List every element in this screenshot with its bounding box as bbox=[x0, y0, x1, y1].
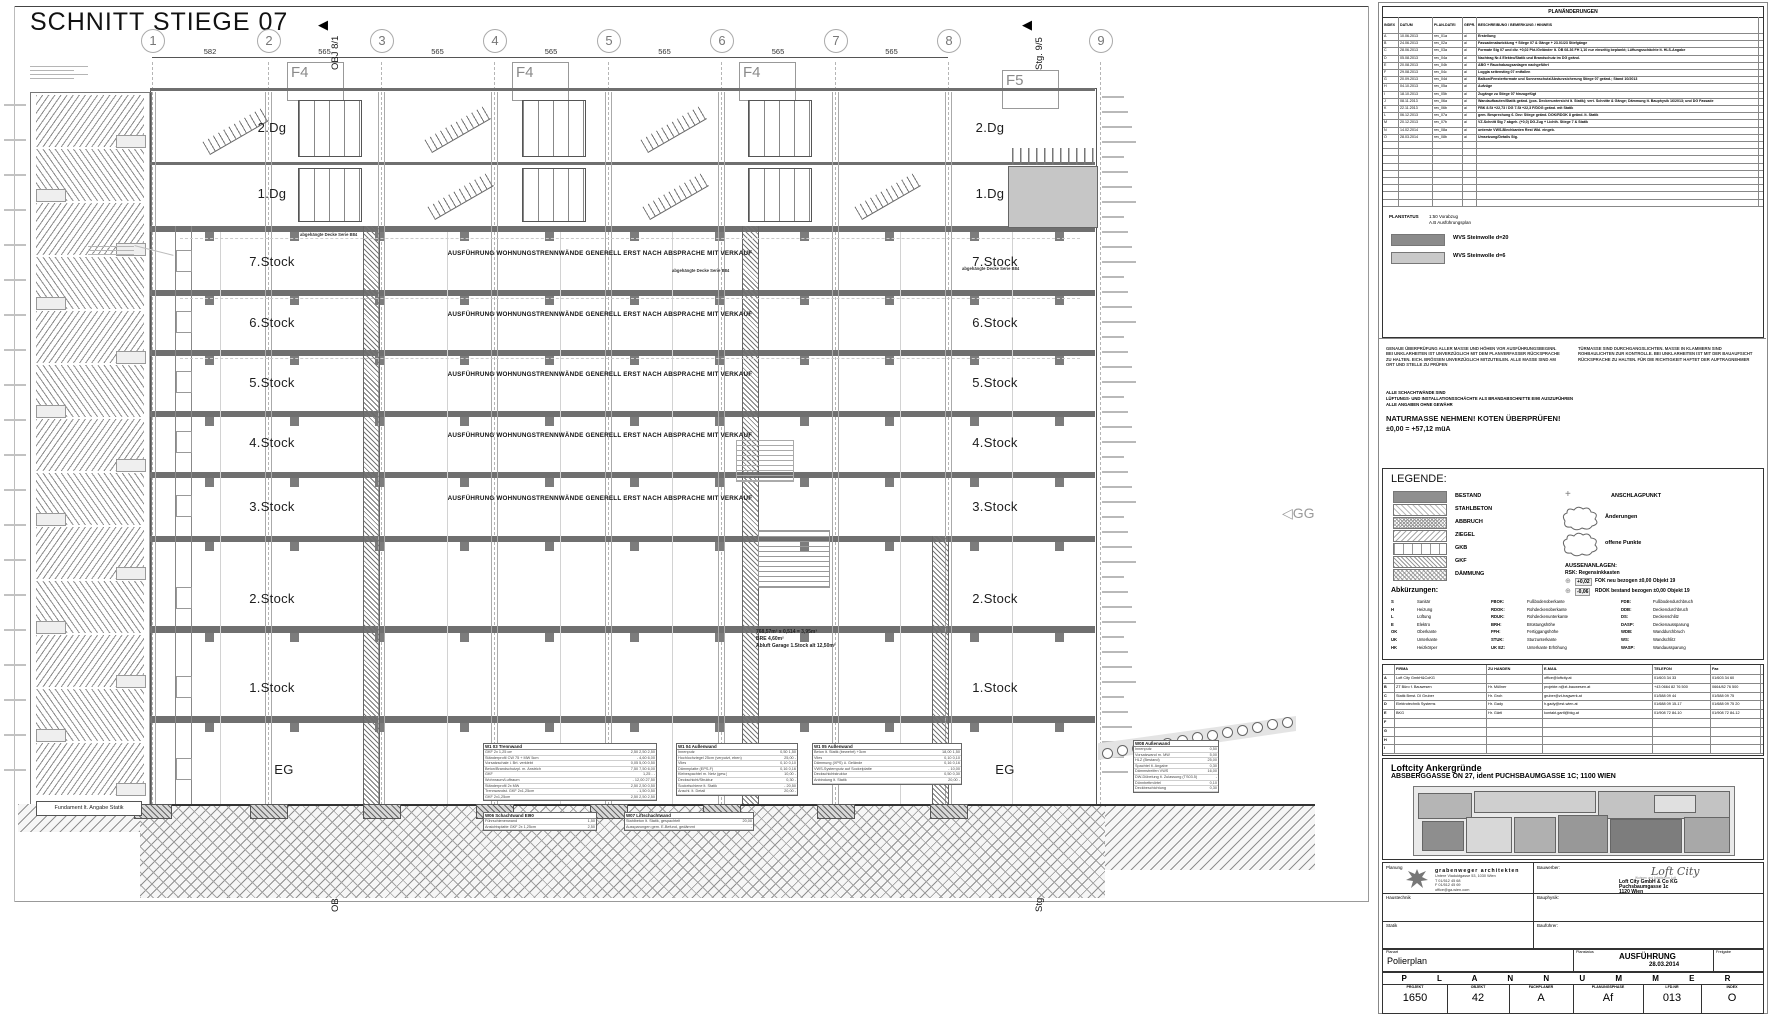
abk-key: S bbox=[1391, 599, 1394, 604]
legend-title: LEGENDE: bbox=[1391, 473, 1447, 485]
spec-row-label: Vlies bbox=[678, 761, 686, 766]
contacts-cell bbox=[1653, 744, 1711, 753]
right-annotation-mark bbox=[1102, 711, 1128, 713]
spec-row-values: 0,10 bbox=[1210, 781, 1217, 786]
abk-meaning: Unterkante Erhöhung bbox=[1527, 645, 1567, 650]
beam-stub bbox=[1055, 542, 1064, 551]
bauwerber-label: Bauwerber: bbox=[1537, 865, 1560, 870]
site-plan-building bbox=[1514, 817, 1556, 853]
stair-tower-landing bbox=[116, 567, 146, 580]
revision-cell: 14.02.2014 bbox=[1399, 127, 1433, 134]
stair-tower-landing bbox=[36, 297, 66, 310]
spec-table: W1 05 AußenwandBeton lt. Statik (bewehrt… bbox=[812, 743, 962, 785]
beam-stub bbox=[545, 232, 554, 241]
revision-cell: K bbox=[1383, 105, 1399, 112]
contacts-cell: 0664/82 76 500 bbox=[1711, 683, 1761, 692]
revision-cell: ai bbox=[1463, 83, 1477, 90]
bauwerber-line: 1120 Wien bbox=[1619, 889, 1643, 895]
spec-row-values: 25,00 bbox=[1207, 758, 1217, 763]
spec-row-label: Deckschichtstruktur bbox=[814, 772, 847, 777]
revision-cloud-icon bbox=[1559, 505, 1601, 531]
beam-stub bbox=[460, 542, 469, 551]
revision-cell: ai bbox=[1463, 47, 1477, 54]
beam-stub bbox=[460, 633, 469, 642]
revision-cell: rev_04d bbox=[1433, 76, 1463, 83]
right-annotation-mark bbox=[1102, 126, 1132, 128]
right-annotation-mark bbox=[1102, 531, 1128, 533]
spec-row-values: 20,00 - bbox=[948, 778, 960, 783]
revision-cell: ai bbox=[1463, 62, 1477, 69]
contacts-row: I bbox=[1383, 744, 1763, 754]
revision-cell: B bbox=[1383, 40, 1399, 47]
stair-tower-landing bbox=[36, 189, 66, 202]
contacts-cell bbox=[1653, 727, 1711, 736]
section-marker-arrow-icon: ◀ bbox=[318, 20, 328, 30]
spec-row-values: 1,50 bbox=[588, 819, 595, 824]
floor-label-left: 2.Dg bbox=[258, 120, 287, 135]
contacts-header-cell: TELEFON bbox=[1653, 665, 1711, 674]
right-annotation-mark bbox=[1102, 216, 1124, 218]
revision-header-cell: INDEX bbox=[1383, 17, 1399, 33]
spec-row-label: Ständerprofil CW 75 + MW 5cm bbox=[485, 756, 539, 761]
shaft-door bbox=[176, 587, 192, 609]
revision-cell: rev_06b bbox=[1433, 105, 1463, 112]
beam-stub bbox=[800, 723, 809, 732]
revision-cell: gem. Besprechung 6. Dez: Stiege geänd. D… bbox=[1477, 112, 1759, 119]
left-annotation-mark bbox=[4, 454, 26, 456]
abk-key: DS: bbox=[1621, 614, 1628, 619]
revision-cell bbox=[1399, 141, 1433, 148]
spec-row-values: - bbox=[1216, 775, 1217, 780]
floor-label-right: 6.Stock bbox=[972, 315, 1017, 330]
spec-row-values: 2,50 2,50 0,50 bbox=[631, 784, 655, 789]
revision-cell: ai bbox=[1463, 98, 1477, 105]
abk-key: DASP: bbox=[1621, 622, 1634, 627]
spec-row-label: Dämmplatte (EPS-F) bbox=[678, 767, 713, 772]
num-vline bbox=[1763, 984, 1764, 1013]
legend-swatch bbox=[1393, 569, 1447, 581]
right-annotation-mark bbox=[1102, 411, 1128, 413]
revision-cell bbox=[1399, 184, 1433, 191]
revision-cell bbox=[1463, 141, 1477, 148]
right-annotation-mark bbox=[1102, 561, 1136, 563]
column-line bbox=[491, 92, 492, 804]
plan-number-value: O bbox=[1701, 992, 1763, 1004]
spec-row-values: 20,00 bbox=[742, 819, 752, 824]
beam-stub bbox=[800, 417, 809, 426]
column-line bbox=[384, 92, 385, 804]
freigabe-label: Freigabe bbox=[1716, 950, 1731, 954]
abk-key: BRH: bbox=[1491, 622, 1501, 627]
grid-bubble-top: 1 bbox=[141, 29, 165, 53]
revision-cell: 20.09.2013 bbox=[1399, 76, 1433, 83]
contacts-cell bbox=[1487, 744, 1543, 753]
abk-meaning: Fußbodenoberkante bbox=[1527, 599, 1565, 604]
spec-row-values: 25,00 - bbox=[784, 756, 796, 761]
revision-cell bbox=[1383, 170, 1399, 177]
contacts-cell: Hr. Groh bbox=[1487, 692, 1543, 701]
ceiling-dashed-line bbox=[180, 298, 1080, 299]
grid-bubble-top: 7 bbox=[824, 29, 848, 53]
ground-hatch-right bbox=[1105, 806, 1315, 870]
gg-marker: ◁GG bbox=[1282, 505, 1315, 522]
revision-cell bbox=[1383, 148, 1399, 155]
contacts-cell: gruber@zt-tragwerk.at bbox=[1543, 692, 1653, 701]
contacts-cell bbox=[1711, 718, 1761, 727]
planstatus-line: A.B Ausführungsplan bbox=[1429, 220, 1471, 225]
beam-stub bbox=[1055, 633, 1064, 642]
contacts-cell bbox=[1487, 736, 1543, 745]
beam-stub bbox=[205, 723, 214, 732]
sheet-frame-top bbox=[14, 6, 1368, 7]
contacts-cell bbox=[1711, 744, 1761, 753]
legend-swatch bbox=[1393, 530, 1447, 542]
contacts-table: FIRMAZU HANDENE-MAILTELEFONFaxALoft City… bbox=[1382, 664, 1764, 756]
contacts-cell: kontakt.gartl@bkg.at bbox=[1543, 709, 1653, 718]
datum-note: ±0,00 = +57,12 müA bbox=[1386, 426, 1451, 433]
grid-bubble-top: 5 bbox=[597, 29, 621, 53]
left-annotation-mark bbox=[4, 349, 26, 351]
stair-flight bbox=[736, 440, 794, 482]
grid-line bbox=[1100, 62, 1101, 830]
revision-cell bbox=[1463, 148, 1477, 155]
ceiling-note: abgehängte Decke Serie B84 bbox=[962, 266, 1019, 271]
floor-label-left: EG bbox=[274, 762, 293, 777]
foundation-pad bbox=[363, 804, 401, 819]
beam-stub bbox=[800, 232, 809, 241]
spec-row-label: DW-Dübelung lt. Zulassung (TS03.5) bbox=[1135, 775, 1197, 780]
drawing-sheet: SCHNITT STIEGE 07 1122334455667788995825… bbox=[0, 0, 1772, 1017]
left-annotation-mark bbox=[4, 139, 26, 141]
revision-cell bbox=[1433, 141, 1463, 148]
spec-row-label: GKF bbox=[485, 772, 493, 777]
foundation-pad bbox=[250, 804, 288, 819]
dim-value-top: 565 bbox=[431, 47, 444, 56]
abk-key: RDUK: bbox=[1491, 614, 1505, 619]
abk-key: FDB: bbox=[1621, 599, 1631, 604]
right-annotation-mark bbox=[1102, 156, 1124, 158]
revision-cell: Fassadenabwicklung + Stiege 07 & Gänge +… bbox=[1477, 40, 1759, 47]
abk-meaning: Wanddurchbruch bbox=[1653, 629, 1685, 634]
revision-cell bbox=[1399, 199, 1433, 206]
revision-cell: ai bbox=[1463, 127, 1477, 134]
beam-stub bbox=[715, 633, 724, 642]
attic-window bbox=[522, 100, 586, 157]
project-address: ABSBERGGASSE ON 27, ident PUCHSBAUMGASSE… bbox=[1391, 773, 1616, 780]
left-annotation-mark bbox=[4, 664, 26, 666]
right-annotation-mark bbox=[1102, 456, 1124, 458]
note-text-mark bbox=[30, 78, 74, 79]
contacts-cell: Hr. Müllner bbox=[1487, 683, 1543, 692]
ceiling-dashed-line bbox=[180, 238, 1080, 239]
revision-cell bbox=[1463, 199, 1477, 206]
right-annotation-mark bbox=[1102, 651, 1128, 653]
site-plan-building bbox=[1654, 795, 1696, 813]
revision-cell: ABG + Rauchabzugsanlagen nachgeführt bbox=[1477, 62, 1759, 69]
floor-label-right: 1.Dg bbox=[976, 186, 1005, 201]
floor-slab bbox=[150, 716, 1095, 723]
revision-cell: J bbox=[1383, 98, 1399, 105]
beam-stub bbox=[545, 723, 554, 732]
titleblock-panel: PLANÄNDERUNGENINDEXDATUMPLAN-DATEIGEPR.B… bbox=[1378, 2, 1768, 1014]
column-line bbox=[951, 92, 952, 804]
revision-cell: 22.11.2013 bbox=[1399, 105, 1433, 112]
haustechnik-label: Haustechnik bbox=[1386, 895, 1411, 900]
left-annotation-mark bbox=[4, 524, 26, 526]
fok-value: -0,06 bbox=[1575, 588, 1590, 596]
contacts-cell bbox=[1711, 727, 1761, 736]
revision-cell: ai bbox=[1463, 33, 1477, 40]
right-annotation-mark bbox=[1102, 111, 1128, 113]
contacts-cell: Hr. Gärtl bbox=[1487, 709, 1543, 718]
notes-col1: GENAUE ÜBERPRÜFUNG ALLER MASSE UND HÖHEN… bbox=[1386, 346, 1564, 368]
abk-key: L bbox=[1391, 614, 1394, 619]
right-annotation-mark bbox=[1102, 351, 1128, 353]
stair-tower-landing bbox=[116, 675, 146, 688]
revision-cell: rev_02a bbox=[1433, 40, 1463, 47]
wall-execution-note: AUSFÜHRUNG WOHNUNGSTRENNWÄNDE GENERELL E… bbox=[448, 311, 753, 318]
right-annotation-mark bbox=[1102, 606, 1132, 608]
dim-value-top: 565 bbox=[885, 47, 898, 56]
legend-item-label: ZIEGEL bbox=[1455, 532, 1475, 538]
floor-label-left: 4.Stock bbox=[249, 435, 294, 450]
project-name: Loftcity Ankergründe bbox=[1391, 763, 1482, 773]
right-annotation-mark bbox=[1102, 276, 1124, 278]
project-box: Loftcity AnkergründeABSBERGGASSE ON 27, … bbox=[1382, 758, 1764, 860]
planstatus-label: PLANSTATUS bbox=[1389, 214, 1419, 219]
contacts-cell bbox=[1543, 736, 1653, 745]
revision-cell: rev_05b bbox=[1433, 91, 1463, 98]
material-swatch bbox=[1391, 234, 1445, 246]
abk-key: UK EZ: bbox=[1491, 645, 1505, 650]
plan-number-value: 013 bbox=[1643, 992, 1701, 1004]
note-text-mark bbox=[88, 246, 134, 247]
legend-item-label: BESTAND bbox=[1455, 493, 1481, 499]
floor-label-left: 6.Stock bbox=[249, 315, 294, 330]
spec-table-row: Aussparungen gem. E-Befund, gedämmt- bbox=[625, 825, 753, 831]
abk-meaning: Wandaussparung bbox=[1653, 645, 1686, 650]
revision-cell bbox=[1383, 163, 1399, 170]
right-annotation-mark bbox=[1102, 246, 1132, 248]
spec-row-label: Sockelschiene lt. Statik bbox=[678, 784, 717, 789]
legend-swatch bbox=[1393, 504, 1447, 516]
spec-row-label: GKF 2x 1,25 cm bbox=[485, 750, 512, 755]
dim-line-top bbox=[152, 57, 948, 58]
stair-tower-landing bbox=[116, 351, 146, 364]
site-plan-building bbox=[1610, 819, 1682, 853]
dim-value-top: 565 bbox=[318, 47, 331, 56]
anschlagpunkt-icon: + bbox=[1565, 489, 1571, 500]
planstatus-label2: Planstatus bbox=[1576, 950, 1594, 954]
revision-cell: L bbox=[1383, 112, 1399, 119]
floor-label-right: 2.Dg bbox=[976, 120, 1005, 135]
wall-execution-note: AUSFÜHRUNG WOHNUNGSTRENNWÄNDE GENERELL E… bbox=[448, 495, 753, 502]
beam-stub bbox=[290, 232, 299, 241]
floor-label-right: 1.Stock bbox=[972, 680, 1017, 695]
spec-table: W07 LiftschachtwandStahlbeton lt. Statik… bbox=[624, 812, 754, 831]
beam-stub bbox=[970, 542, 979, 551]
dim-value-top: 565 bbox=[772, 47, 785, 56]
ceiling-note: abgehängte Decke Serie B84 bbox=[672, 268, 729, 273]
beam-stub bbox=[630, 723, 639, 732]
revision-cell: rev_05a bbox=[1433, 83, 1463, 90]
fok-value: +0,02 bbox=[1575, 578, 1592, 586]
bot-vline bbox=[1713, 949, 1714, 971]
shaft-door bbox=[176, 495, 192, 517]
abk-meaning: Deckenschlitz bbox=[1653, 614, 1679, 619]
beam-stub bbox=[290, 633, 299, 642]
revision-cell bbox=[1433, 155, 1463, 162]
revision-cell: 24.06.2013 bbox=[1399, 40, 1433, 47]
austrian-eagle-icon bbox=[1405, 868, 1429, 892]
abk-key: E bbox=[1391, 622, 1394, 627]
contacts-cell: 01/688 09 15-17 bbox=[1653, 700, 1711, 709]
right-annotation-mark bbox=[1102, 231, 1128, 233]
revision-cell: Wandaufbauten/Statik geänd. (pos. Decken… bbox=[1477, 98, 1759, 105]
beam-stub bbox=[205, 478, 214, 487]
column-line bbox=[724, 92, 725, 804]
revision-cell: ai bbox=[1463, 76, 1477, 83]
floor-label-right: 4.Stock bbox=[972, 435, 1017, 450]
contacts-cell: Loft City GmbH&CoKG bbox=[1395, 674, 1487, 683]
beam-stub bbox=[715, 478, 724, 487]
revision-cell bbox=[1433, 170, 1463, 177]
ramp-baluster-circle bbox=[1252, 722, 1263, 733]
abk-meaning: Sturzunterkante bbox=[1527, 637, 1557, 642]
section-drawing-area: SCHNITT STIEGE 07 1122334455667788995825… bbox=[0, 0, 1372, 1017]
statik-label: Statik bbox=[1386, 923, 1397, 928]
stair-tower-landing bbox=[36, 513, 66, 526]
column-line bbox=[155, 92, 156, 804]
revision-cell: rev_06a bbox=[1433, 98, 1463, 105]
dim-value-top: 565 bbox=[658, 47, 671, 56]
beam-stub bbox=[290, 478, 299, 487]
plannummer-letters: P L A N N U M M E R bbox=[1383, 974, 1763, 983]
planung-line: F 01/512 45 69 bbox=[1435, 883, 1461, 887]
abk-meaning: Deckenaussparung bbox=[1653, 622, 1689, 627]
site-plan-building bbox=[1418, 793, 1472, 819]
spec-row-label: Beton/Brandschutzpl. m. Anstrich bbox=[485, 767, 541, 772]
floor-label-left: 5.Stock bbox=[249, 375, 294, 390]
beam-stub bbox=[630, 542, 639, 551]
right-annotation-mark bbox=[1102, 441, 1136, 443]
anschlagpunkt-label: ANSCHLAGPUNKT bbox=[1611, 493, 1661, 499]
spec-row-values: 0,30 bbox=[1210, 786, 1217, 791]
left-annotation-mark bbox=[4, 734, 26, 736]
beam-stub bbox=[885, 542, 894, 551]
abk-title: Abkürzungen: bbox=[1391, 587, 1438, 594]
revision-cell bbox=[1383, 191, 1399, 198]
plan-number-label: INDEX bbox=[1701, 985, 1763, 989]
revision-cell bbox=[1463, 163, 1477, 170]
beam-stub bbox=[460, 478, 469, 487]
revision-cell: 06.12.2013 bbox=[1399, 112, 1433, 119]
floor-label-left: 1.Stock bbox=[249, 680, 294, 695]
spec-row-values: 2,50 2,50 2,50 bbox=[631, 750, 655, 755]
foundation-note-box: Fundament lt. Angabe Statik bbox=[36, 801, 142, 816]
spec-row-values: 16,00 bbox=[1207, 769, 1217, 774]
contacts-header-cell: Fax bbox=[1711, 665, 1761, 674]
area-note: 768,57m² x 0,514 = 3,95m³ bbox=[756, 630, 817, 635]
revision-cell bbox=[1477, 191, 1759, 198]
bauphysik-label: Bauphysik: bbox=[1537, 895, 1559, 900]
revision-cell bbox=[1463, 177, 1477, 184]
abk-meaning: Rohdeckenoberkante bbox=[1527, 607, 1567, 612]
right-annotation-mark bbox=[1102, 171, 1128, 173]
left-annotation-mark bbox=[4, 699, 26, 701]
right-annotation-mark bbox=[1102, 486, 1132, 488]
revision-cell: ai bbox=[1463, 91, 1477, 98]
revision-cell: Umsetzung/Details Stg. bbox=[1477, 134, 1759, 141]
site-plan-building bbox=[1422, 821, 1464, 851]
revision-cell bbox=[1477, 170, 1759, 177]
fok-label: FOK neu bezogen ±0,00 Objekt 19 bbox=[1595, 578, 1675, 584]
contacts-cell bbox=[1395, 744, 1487, 753]
abk-meaning: Fertiggangshöhe bbox=[1527, 629, 1558, 634]
naturmass-note: NATURMASSE NEHMEN! KOTEN ÜBERPRÜFEN! bbox=[1386, 414, 1560, 423]
contacts-cell: 01/908 72 84-12 bbox=[1711, 709, 1761, 718]
contacts-cell: 01/688 09 75 20 bbox=[1711, 700, 1761, 709]
revision-cell bbox=[1433, 199, 1463, 206]
stair-tower-landing bbox=[116, 459, 146, 472]
revision-cell: 28.03.2014 bbox=[1399, 134, 1433, 141]
legend-swatch bbox=[1393, 556, 1447, 568]
revision-cell: H bbox=[1383, 83, 1399, 90]
revision-cell bbox=[1399, 177, 1433, 184]
revision-row-empty bbox=[1383, 199, 1763, 207]
revision-cell: F bbox=[1383, 69, 1399, 76]
revision-cell bbox=[1477, 199, 1759, 206]
abk-key: OK bbox=[1391, 629, 1397, 634]
planstatus-value: AUSFÜHRUNG bbox=[1619, 952, 1676, 961]
beam-stub bbox=[800, 478, 809, 487]
revision-cell bbox=[1477, 184, 1759, 191]
revision-cell: rev_08b bbox=[1433, 134, 1463, 141]
spec-row-values: 0,16 0,16 bbox=[780, 767, 796, 772]
revision-cell bbox=[1399, 148, 1433, 155]
beam-stub bbox=[290, 723, 299, 732]
spec-table: W06 Schachtwand EI90Führschienenwand1,50… bbox=[483, 812, 597, 831]
spec-row-label: Vorsatzschale i. Brt. verklebt bbox=[485, 761, 533, 766]
parties-table: Planunggrabenweger architektenUntere Via… bbox=[1382, 862, 1764, 950]
revision-cell bbox=[1433, 177, 1463, 184]
beam-stub bbox=[290, 417, 299, 426]
aussenanlagen-sub: RSK: Regensinkkasten bbox=[1565, 570, 1620, 576]
contacts-cell: B bbox=[1383, 683, 1395, 692]
fok-symbol-icon: ⊕ bbox=[1565, 587, 1571, 595]
shaft-door bbox=[176, 371, 192, 393]
revision-cell: rev_04c bbox=[1433, 69, 1463, 76]
fok-symbol-icon: ⊕ bbox=[1565, 577, 1571, 585]
spec-row-label: Dämmung (XPS) ü. Gelände bbox=[814, 761, 862, 766]
note-text-mark bbox=[30, 70, 74, 71]
cloud-label-offene-punkte: offene Punkte bbox=[1605, 540, 1641, 546]
right-annotation-mark bbox=[1102, 726, 1132, 728]
contacts-cell bbox=[1543, 718, 1653, 727]
plan-number-label: FACHPLANER bbox=[1509, 985, 1573, 989]
spec-row-values: 2,50 bbox=[588, 825, 595, 830]
beam-stub bbox=[715, 232, 724, 241]
revision-header-cell: GEPR. bbox=[1463, 17, 1477, 33]
planung-line: office@ga-wien.com bbox=[1435, 888, 1469, 892]
ground-hatch bbox=[140, 806, 1105, 898]
beam-stub bbox=[460, 232, 469, 241]
shaft-door bbox=[176, 250, 192, 272]
revision-cell: ai bbox=[1463, 69, 1477, 76]
revision-cell: ai bbox=[1463, 55, 1477, 62]
revision-cell: 28.06.2013 bbox=[1399, 47, 1433, 54]
legend-item-label: DÄMMUNG bbox=[1455, 571, 1484, 577]
